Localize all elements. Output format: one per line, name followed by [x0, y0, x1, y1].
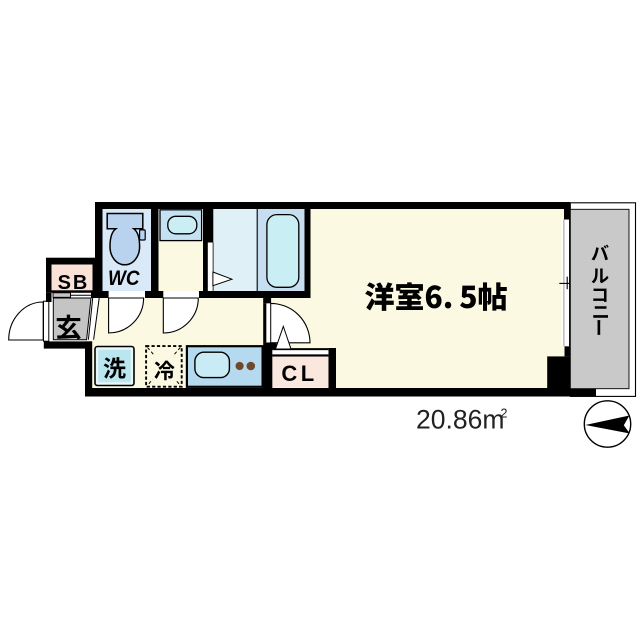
svg-text:CL: CL	[281, 361, 317, 386]
svg-text:WC: WC	[108, 267, 140, 290]
svg-text:20.86m: 20.86m	[416, 405, 504, 435]
svg-text:2: 2	[501, 407, 508, 421]
svg-text:SB: SB	[58, 272, 90, 294]
